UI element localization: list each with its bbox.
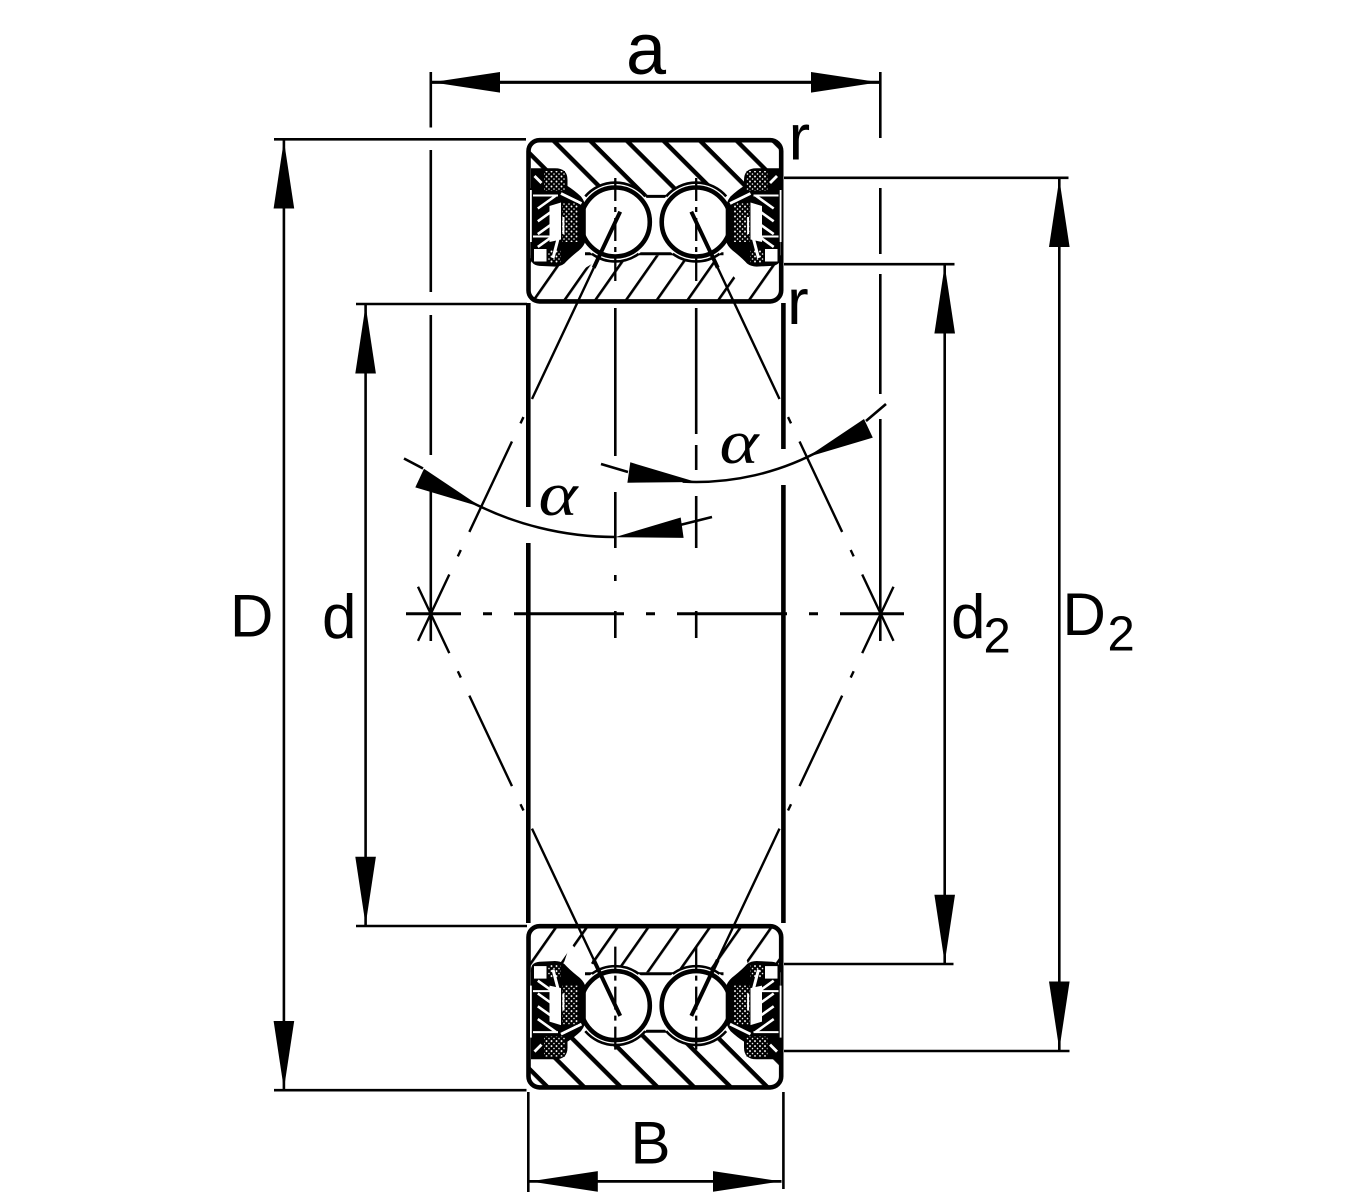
svg-text:d: d [322, 583, 356, 652]
svg-text:D: D [1063, 581, 1106, 648]
svg-text:r: r [787, 265, 809, 338]
svg-text:α: α [720, 408, 761, 477]
svg-text:a: a [626, 10, 667, 90]
svg-text:2: 2 [984, 610, 1011, 664]
svg-text:d: d [951, 583, 985, 652]
svg-text:r: r [789, 101, 811, 174]
svg-text:D: D [230, 583, 273, 650]
svg-text:2: 2 [1108, 608, 1135, 662]
svg-text:α: α [539, 460, 580, 529]
svg-text:B: B [631, 1110, 671, 1177]
